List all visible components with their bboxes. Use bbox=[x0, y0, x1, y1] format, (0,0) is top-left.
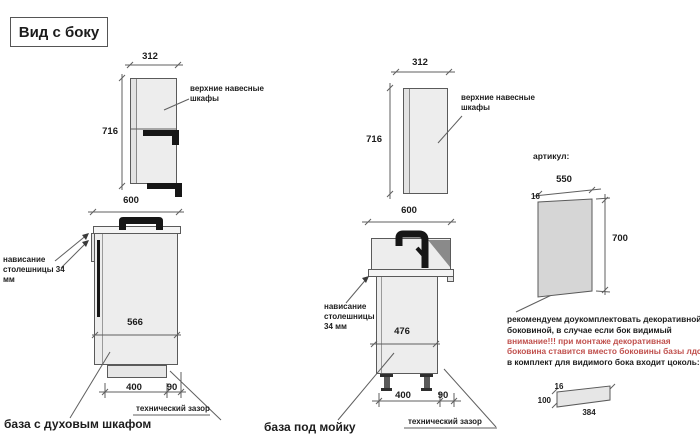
wall-cabinet-label: верхние навесные шкафы bbox=[461, 93, 535, 113]
wall-cabinet-handle-profile bbox=[147, 183, 182, 197]
dim-gap: 90 bbox=[433, 390, 453, 402]
wall-cabinet-label: верхние навесные шкафы bbox=[190, 84, 264, 104]
oven-door-strip bbox=[97, 240, 100, 317]
arrowhead bbox=[82, 233, 89, 240]
overhang-label: нависание столешницы 34 мм bbox=[3, 255, 77, 285]
dim-width: 312 bbox=[135, 51, 165, 63]
oven-handle-icon bbox=[119, 217, 163, 230]
sink-shading-triangle bbox=[428, 240, 450, 267]
dim-gap: 90 bbox=[162, 382, 182, 394]
article-heading: артикул: bbox=[533, 151, 569, 162]
dim-width: 600 bbox=[116, 195, 146, 207]
warning-line-1: внимание!!! при монтаже декоративная bbox=[507, 336, 671, 347]
overhang-label: нависание столешницы 34 мм bbox=[324, 302, 374, 332]
arrowhead bbox=[362, 276, 369, 283]
dim-depth: 476 bbox=[387, 326, 417, 338]
dim-height: 716 bbox=[358, 134, 382, 146]
wall-cabinet-handle-profile bbox=[143, 130, 179, 145]
dim-height: 716 bbox=[94, 126, 118, 138]
dim-plinth-height: 100 bbox=[531, 396, 551, 406]
dim-depth: 566 bbox=[120, 317, 150, 329]
cabinet-leg-stem bbox=[384, 377, 430, 388]
warning-line-2: боковина ставится вместо боковины базы л… bbox=[507, 346, 700, 357]
dim-width: 600 bbox=[394, 205, 424, 217]
note-line-3: в комплект для видимого бока входит цоко… bbox=[507, 357, 700, 368]
technical-gap-label: технический зазор bbox=[136, 404, 210, 414]
dim-panel-height: 700 bbox=[606, 233, 634, 245]
dim-panel-width: 550 bbox=[550, 174, 578, 186]
drawing-canvas: Вид с боку bbox=[0, 0, 700, 438]
dim-plinth: 400 bbox=[388, 390, 418, 402]
caption-sink-base: база под мойку bbox=[264, 420, 356, 435]
dim-plinth-length: 384 bbox=[577, 408, 601, 418]
note-line-2: боковиной, в случае если бок видимый bbox=[507, 325, 672, 336]
dim-plinth: 400 bbox=[119, 382, 149, 394]
dim-width: 312 bbox=[405, 57, 435, 69]
caption-oven-base: база с духовым шкафом bbox=[4, 417, 151, 432]
note-line-1: рекомендуем доукомплектовать декоративно… bbox=[507, 314, 700, 325]
dim-panel-thickness: 16 bbox=[531, 192, 540, 202]
dimension-linework bbox=[0, 0, 700, 438]
decorative-side-panel bbox=[538, 199, 592, 297]
technical-gap-label: технический зазор bbox=[408, 417, 486, 427]
dim-plinth-thickness: 16 bbox=[549, 382, 569, 392]
